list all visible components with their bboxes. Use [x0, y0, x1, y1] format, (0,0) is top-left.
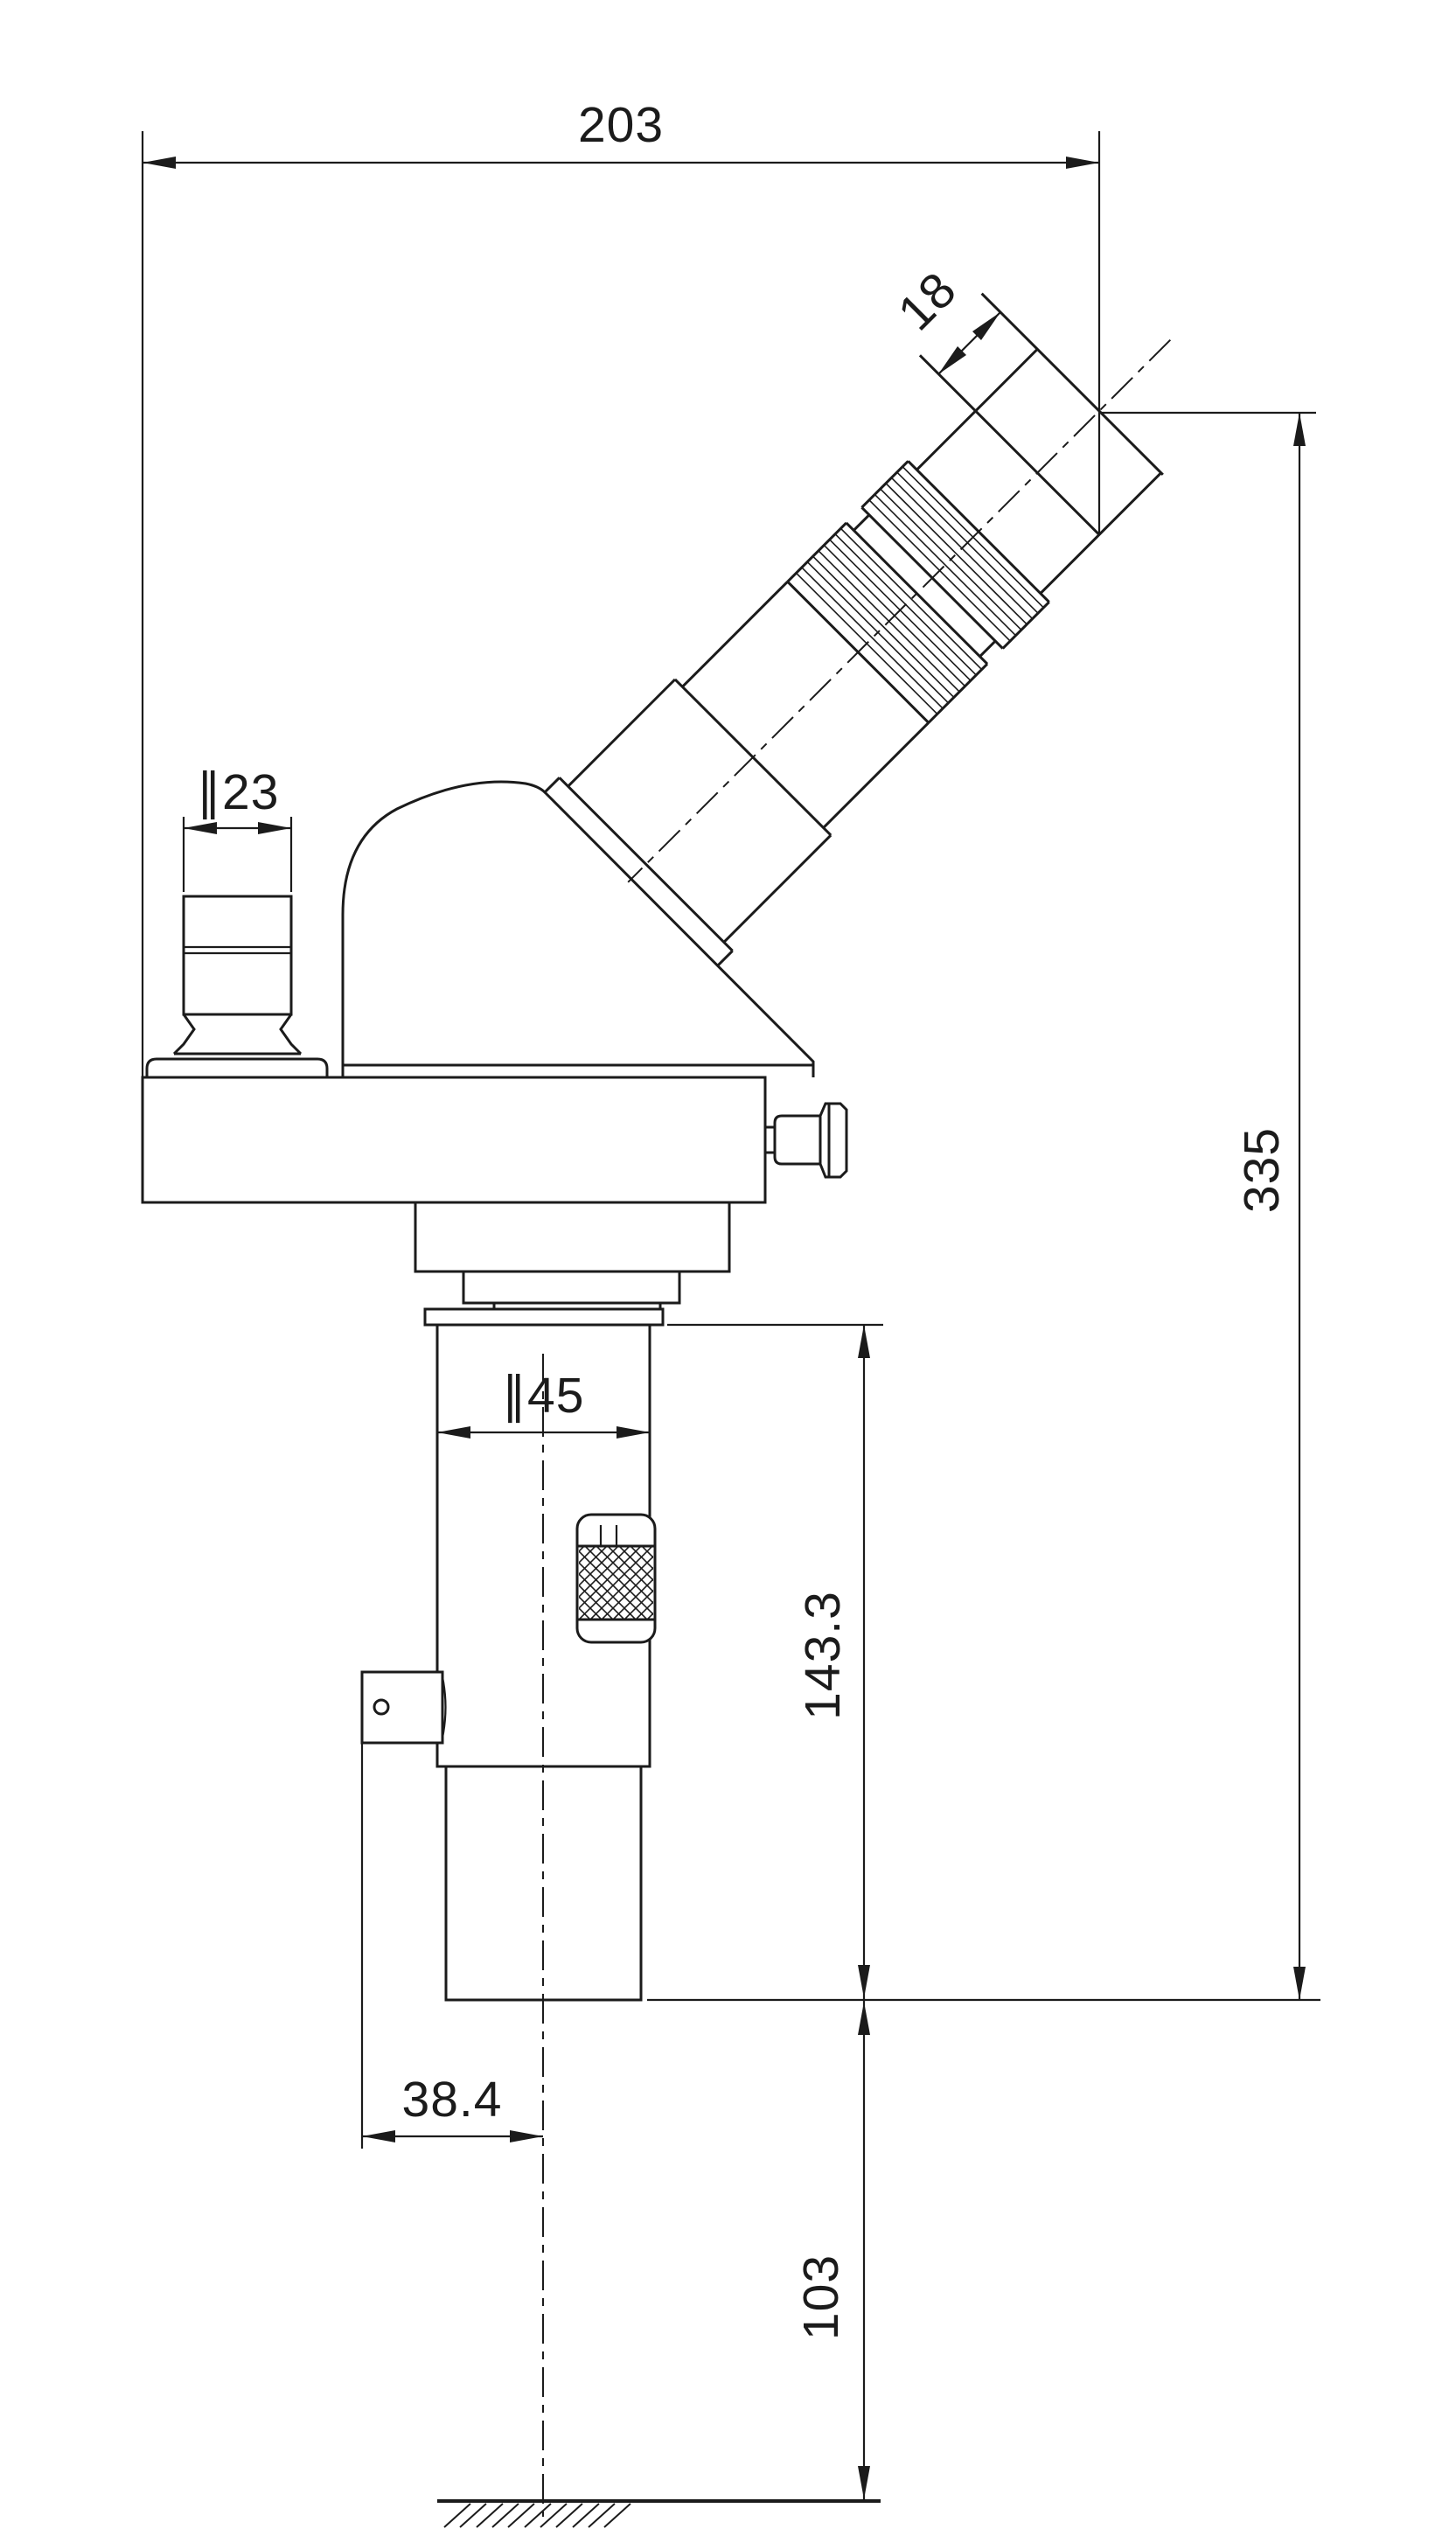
- base-edge-b: [724, 835, 831, 942]
- mounting-bracket: [362, 1672, 446, 1743]
- arrow-d23-left: [184, 822, 217, 834]
- reducer-stack: [415, 1202, 729, 1325]
- groove-edge-a: [853, 515, 869, 531]
- body-block: [143, 1077, 846, 1202]
- eyepiece-end-face: [982, 294, 1163, 475]
- eyepiece-assembly: [511, 222, 1257, 968]
- arrow-335-bottom: [1293, 1967, 1306, 2000]
- arrow-1433-bottom: [858, 1965, 870, 1998]
- dim-label-103: 103: [793, 2254, 849, 2340]
- arrow-right: [1066, 157, 1099, 169]
- eyepiece-axis-centerline: [628, 340, 1170, 882]
- knob-head: [820, 1104, 846, 1177]
- arrow-1433-top: [858, 1325, 870, 1358]
- ground-line: [437, 2501, 881, 2527]
- dimension-18: 18: [888, 261, 1000, 374]
- body-rect: [143, 1077, 765, 1202]
- skirt-edge-a: [682, 582, 787, 686]
- head-housing: [343, 782, 813, 1077]
- reducer-step-1: [415, 1202, 729, 1271]
- dimension-103: 103: [793, 2000, 870, 2501]
- knob-stem: [775, 1116, 820, 1164]
- dim-label-203: 203: [578, 97, 664, 153]
- dim-label-384: 38.4: [402, 2072, 503, 2128]
- eyepiece-barrel-edge-lower: [1041, 473, 1161, 594]
- arrow-335-top: [1293, 413, 1306, 446]
- base-edge-a: [568, 679, 675, 786]
- dim-label-18: 18: [888, 261, 968, 342]
- technical-drawing: 203 18 ∥23 ∥45 335 143.3: [0, 0, 1456, 2529]
- head-outline: [343, 782, 813, 1077]
- dim-label-335: 335: [1234, 1127, 1290, 1213]
- port-waist-right: [281, 1014, 301, 1054]
- arrow-d23-right: [258, 822, 291, 834]
- eyepiece-barrel-edge-upper: [916, 349, 1037, 470]
- dim-label-1433: 143.3: [795, 1591, 851, 1720]
- skirt-edge-b: [824, 722, 929, 827]
- dim-label-d45: ∥45: [502, 1368, 585, 1424]
- arrow-384-left: [362, 2130, 395, 2142]
- port-base-block: [147, 1059, 327, 1077]
- dimension-d23: ∥23: [184, 764, 291, 892]
- flange-side-b: [717, 951, 733, 966]
- ground-hatching: [444, 2504, 630, 2527]
- knob-washer: [765, 1127, 775, 1153]
- flange-side-a: [544, 777, 560, 793]
- drawing-sheet: 203 18 ∥23 ∥45 335 143.3: [0, 0, 1456, 2529]
- dimension-143-3: 143.3: [667, 1325, 883, 2000]
- dim-label-d23: ∥23: [197, 764, 280, 820]
- arrow-384-right: [510, 2130, 543, 2142]
- port-waist-left: [174, 1014, 194, 1054]
- groove-edge-b: [980, 641, 996, 657]
- camera-port: [147, 896, 327, 1077]
- arrow-left: [143, 157, 176, 169]
- mount-collar: [425, 1309, 663, 1325]
- arrow-103-top: [858, 2002, 870, 2035]
- port-cylinder: [184, 896, 291, 1014]
- arrow-103-bottom: [858, 2466, 870, 2499]
- reducer-step-2: [463, 1271, 679, 1303]
